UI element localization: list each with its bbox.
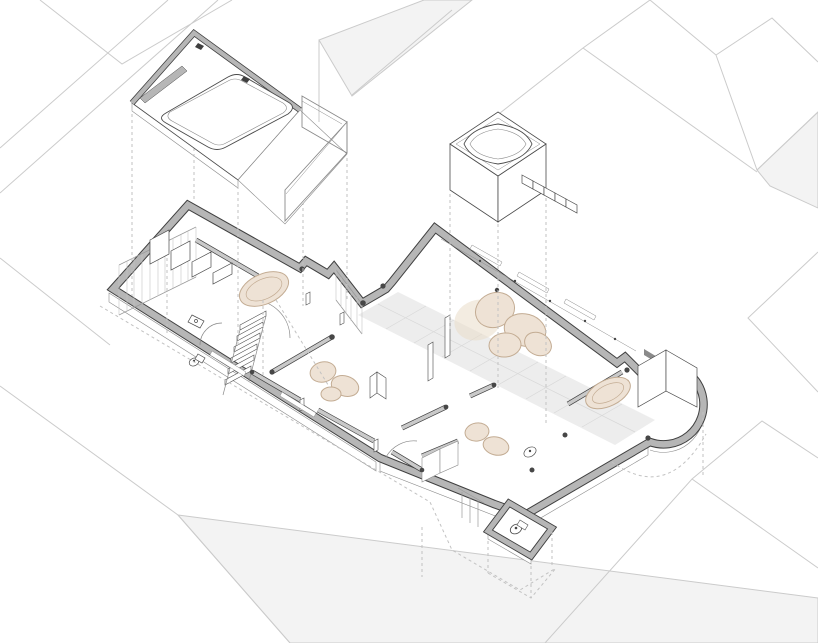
door-swing-arc — [386, 441, 417, 457]
door-post — [374, 439, 378, 452]
axonometric-drawing — [0, 0, 818, 643]
mullion-tick — [584, 320, 586, 322]
rooflight-box — [450, 112, 577, 222]
basin-tap — [529, 450, 531, 452]
column-dot — [420, 468, 425, 473]
window-panel — [564, 299, 596, 320]
shelf-box — [192, 252, 211, 277]
beanbag — [321, 387, 341, 401]
door-post — [428, 342, 433, 381]
column-dot — [269, 369, 274, 374]
mullion-tick — [549, 300, 551, 302]
column-dot — [492, 383, 497, 388]
context-facade-top — [319, 0, 472, 96]
pouf — [234, 265, 294, 314]
folding-door-leaf — [370, 372, 377, 398]
column-dot — [329, 334, 335, 340]
step — [566, 199, 577, 213]
mullion-tick — [479, 260, 481, 262]
door-post — [306, 292, 310, 305]
column-dot — [299, 266, 304, 271]
column-dot — [444, 405, 449, 410]
column-dot — [495, 288, 499, 292]
column-dot — [624, 367, 629, 372]
door-post — [445, 315, 450, 358]
shelf-box — [171, 241, 190, 270]
context-roof-face-right — [757, 112, 818, 208]
vanity-left — [188, 315, 204, 328]
shelf-box — [213, 263, 232, 284]
column-dot — [250, 370, 255, 375]
step — [555, 193, 566, 207]
folding-door-leaf — [377, 372, 386, 399]
shelf-box — [150, 230, 169, 264]
door-post — [340, 312, 344, 325]
column-dot — [530, 468, 535, 473]
mullion-tick — [514, 280, 516, 282]
column-dot — [563, 433, 568, 438]
context-roof-lines-right — [748, 252, 818, 392]
mullion-tick — [614, 338, 616, 340]
column-dot — [360, 300, 366, 306]
drawing-canvas — [0, 0, 818, 643]
toilet-drain — [515, 527, 518, 530]
column-dot — [380, 283, 385, 288]
shelf-unit — [150, 230, 232, 284]
column-dot — [645, 435, 650, 440]
